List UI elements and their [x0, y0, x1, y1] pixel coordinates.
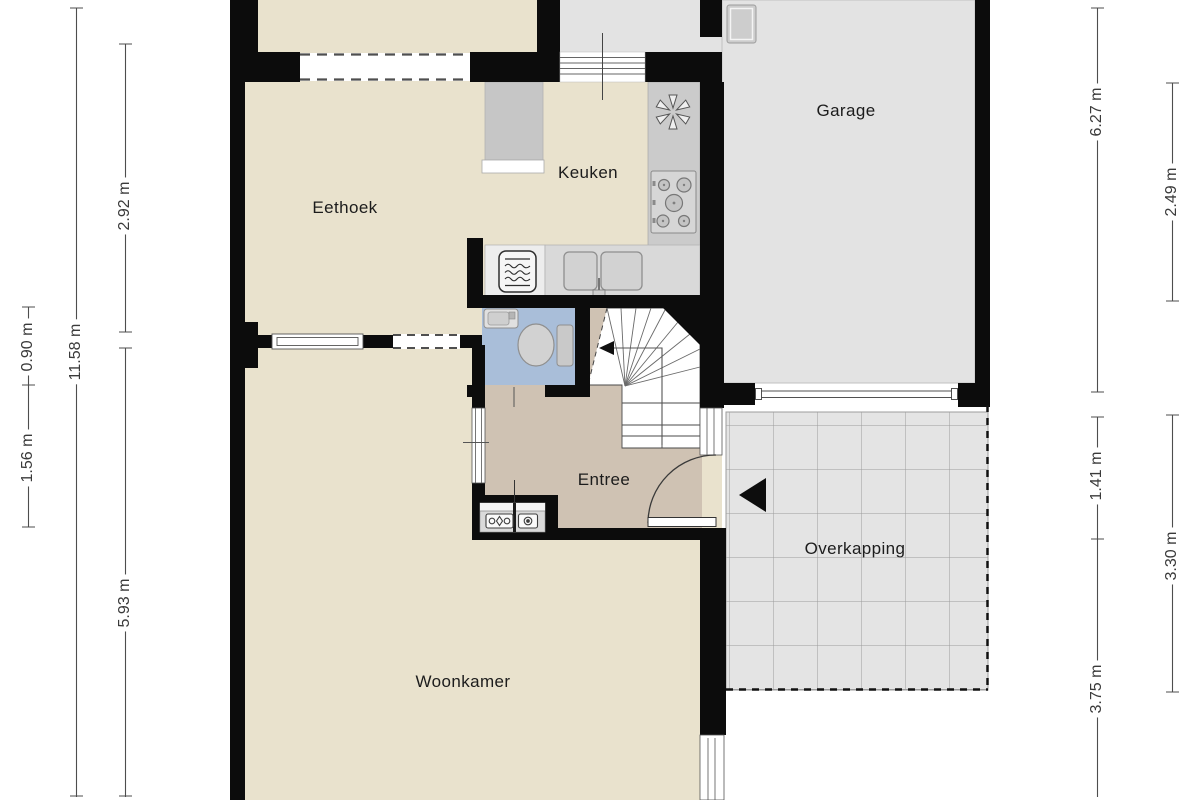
- garage-door: [755, 384, 958, 404]
- opening-eethoek-woonkamer: [393, 334, 460, 349]
- floor-front-area: [558, 0, 722, 52]
- boiler-icon: [727, 5, 756, 43]
- dim-label-1158: 11.58 m: [66, 320, 86, 385]
- room-label-overkapping: Overkapping: [805, 539, 906, 559]
- gas-meter-icon: [519, 514, 538, 528]
- electricity-meter-icon: [486, 514, 513, 528]
- dim-label-292: 2.92 m: [115, 178, 135, 235]
- window-front-sidelight: [700, 408, 722, 455]
- dim-label-375: 3.75 m: [1087, 661, 1107, 718]
- dim-label-249: 2.49 m: [1162, 164, 1182, 221]
- microwave-icon: [499, 251, 536, 292]
- stove-icon: [651, 171, 696, 233]
- counter-edge: [482, 160, 544, 173]
- dim-label-330: 3.30 m: [1162, 528, 1182, 585]
- fridge-icon: [485, 82, 543, 160]
- dim-label-090: 0.90 m: [18, 319, 38, 376]
- room-label-keuken: Keuken: [558, 163, 618, 183]
- room-label-garage: Garage: [816, 101, 875, 121]
- floor-garage: [722, 0, 975, 383]
- dim-label-593: 5.93 m: [115, 575, 135, 632]
- front-door-leaf: [648, 518, 716, 527]
- room-label-eethoek: Eethoek: [312, 198, 377, 218]
- opening-top-left: [300, 53, 470, 81]
- dim-label-627: 6.27 m: [1087, 84, 1107, 141]
- dim-label-141: 1.41 m: [1087, 448, 1107, 505]
- room-label-entree: Entree: [578, 470, 631, 490]
- wall-garage-east: [975, 0, 990, 407]
- double-sink-icon: [564, 252, 642, 296]
- window-entree-west: [472, 408, 485, 483]
- room-label-woonkamer: Woonkamer: [416, 672, 511, 692]
- toilet-icon: [518, 324, 573, 366]
- floor-plan-drawing: [0, 0, 1200, 800]
- wall-west: [230, 0, 245, 800]
- wall-kitchen-garage: [700, 82, 724, 408]
- dim-label-156: 1.56 m: [18, 430, 38, 487]
- window-eethoek-woonkamer: [272, 334, 363, 349]
- floor-plan: Eethoek Keuken Garage Entree Woonkamer O…: [0, 0, 1200, 800]
- wall-woonkamer-east: [700, 528, 726, 735]
- window-woonkamer-east: [700, 735, 724, 800]
